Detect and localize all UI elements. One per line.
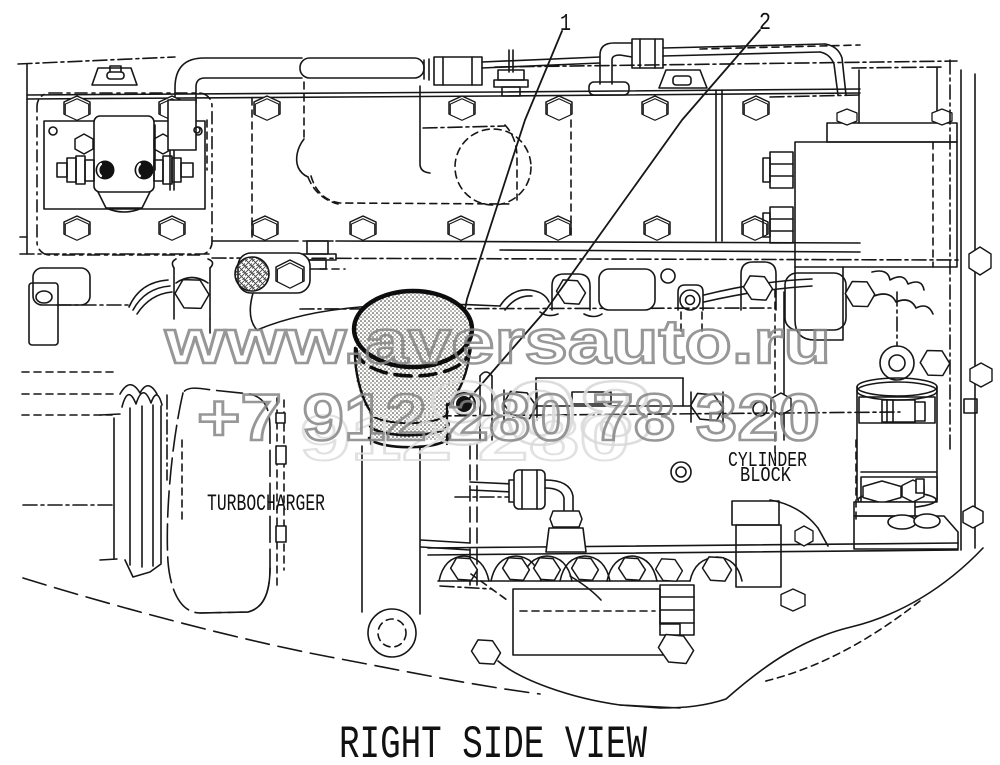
svg-text:RIGHT SIDE VIEW: RIGHT SIDE VIEW (339, 719, 647, 765)
svg-text:+7 912 280 78 320: +7 912 280 78 320 (197, 380, 820, 454)
svg-text:TURBOCHARGER: TURBOCHARGER (207, 491, 325, 517)
svg-text:BLOCK: BLOCK (740, 465, 791, 488)
svg-text:2: 2 (759, 10, 771, 37)
svg-text:1: 1 (560, 11, 571, 38)
svg-text:www.aversauto.ru: www.aversauto.ru (164, 308, 831, 377)
